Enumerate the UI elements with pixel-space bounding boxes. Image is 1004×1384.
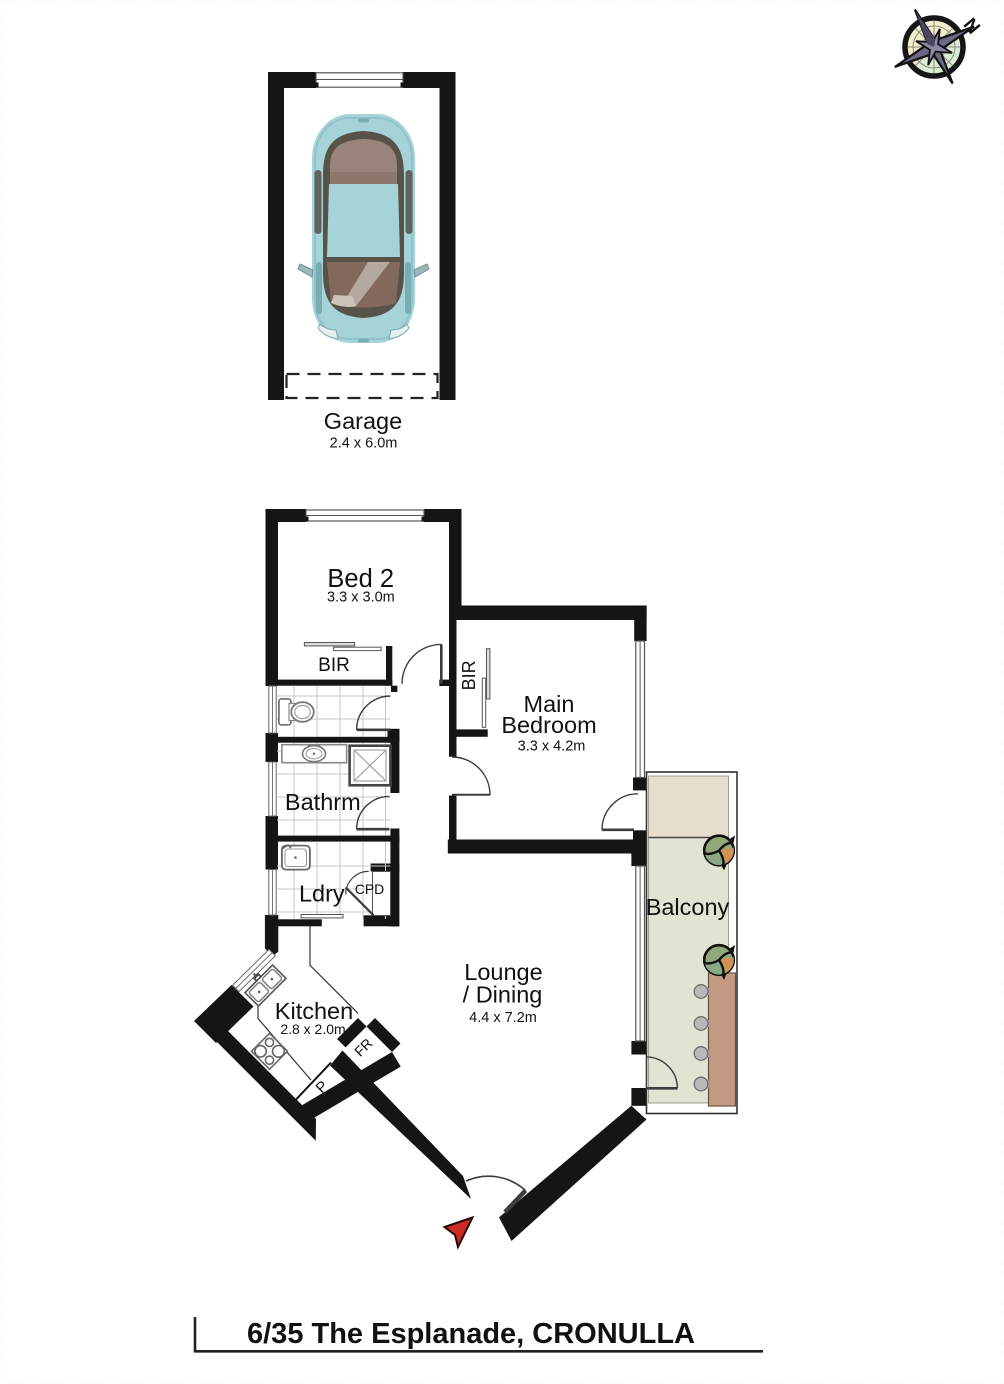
svg-text:/ Dining: / Dining bbox=[463, 982, 543, 1008]
svg-text:Garage: Garage bbox=[324, 408, 402, 434]
svg-text:3.3 x 4.2m: 3.3 x 4.2m bbox=[518, 738, 586, 754]
svg-text:2.8 x 2.0m: 2.8 x 2.0m bbox=[280, 1021, 345, 1037]
svg-text:Balcony: Balcony bbox=[646, 894, 730, 920]
svg-text:FR: FR bbox=[351, 1035, 376, 1060]
svg-text:2.4 x 6.0m: 2.4 x 6.0m bbox=[330, 436, 398, 452]
svg-text:BIR: BIR bbox=[459, 660, 479, 690]
svg-text:3.3 x 3.0m: 3.3 x 3.0m bbox=[327, 590, 395, 606]
svg-text:CPD: CPD bbox=[355, 881, 385, 897]
svg-text:6/35 The Esplanade, CRONULLA: 6/35 The Esplanade, CRONULLA bbox=[247, 1318, 695, 1350]
svg-text:Ldry: Ldry bbox=[299, 881, 345, 907]
svg-text:Bedroom: Bedroom bbox=[501, 712, 596, 738]
svg-text:Bathrm: Bathrm bbox=[285, 789, 361, 815]
svg-text:BIR: BIR bbox=[318, 655, 350, 676]
svg-text:4.4 x 7.2m: 4.4 x 7.2m bbox=[469, 1010, 537, 1026]
